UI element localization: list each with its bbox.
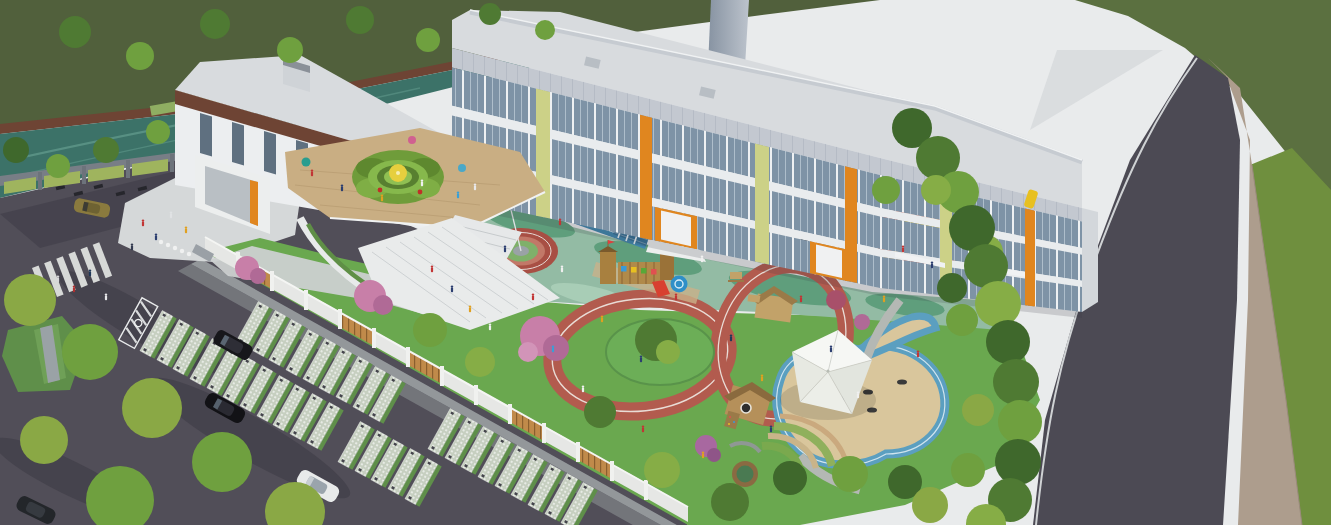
canopy-mast [826, 369, 829, 372]
parasol [302, 158, 311, 167]
accent-pilaster [755, 144, 769, 265]
hedge-maze [352, 150, 444, 204]
east-end-wall [1082, 208, 1098, 312]
parasol [458, 164, 466, 172]
parasol [408, 136, 416, 144]
architectural-rendering [0, 0, 1331, 525]
rendering-canvas [0, 0, 1331, 525]
accent-pilaster [536, 89, 550, 219]
accent-pilaster-orange [640, 115, 652, 240]
blue-tube-slide [671, 276, 688, 293]
round-window [741, 403, 751, 413]
accent-pilaster-orange [1025, 208, 1035, 306]
